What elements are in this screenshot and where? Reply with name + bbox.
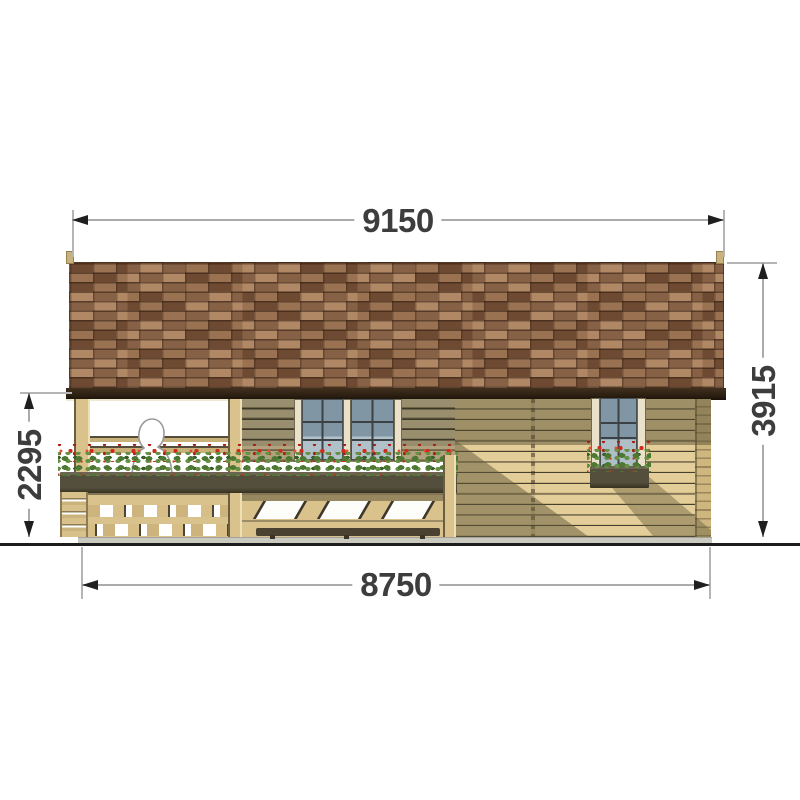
terrace-railing-middle: [240, 493, 443, 537]
ground-line: [0, 543, 800, 546]
eave-shadow: [455, 399, 711, 445]
arrow-left-icon: [82, 580, 98, 590]
railing-slot-row-lower: [62, 524, 240, 536]
railing-opening-3: [381, 501, 435, 519]
extension-line: [81, 547, 83, 599]
arrow-down-icon: [24, 521, 34, 537]
dimension-label-roof-width: 9150: [354, 203, 441, 239]
bench-leg: [344, 535, 349, 539]
arrow-right-icon: [708, 215, 724, 225]
dimension-label-overall-height: 3915: [746, 357, 782, 444]
terrace-railing-left: [62, 493, 240, 537]
arrow-up-icon: [758, 263, 768, 279]
shingle-roof: [69, 262, 724, 389]
railing-slot-row-upper: [62, 505, 240, 517]
porch-post-middle-lower: [228, 493, 242, 537]
elevation-drawing-canvas: 9150 3915 2295 8750: [0, 0, 800, 800]
extension-line: [727, 262, 777, 264]
railing-opening-2: [317, 501, 371, 519]
arrow-down-icon: [758, 521, 768, 537]
cabin-wall: [455, 399, 711, 537]
arrow-right-icon: [694, 580, 710, 590]
terrace-end-post: [443, 455, 456, 537]
bench-leg: [420, 535, 425, 539]
dimension-label-porch-height: 2295: [12, 421, 48, 508]
bench-leg: [270, 535, 275, 539]
railing-board-line: [240, 520, 443, 522]
window-flowers-green: [587, 449, 651, 472]
log-corner-joint-left: [60, 492, 88, 537]
arrow-left-icon: [72, 215, 88, 225]
terrace-flowers-green: [58, 452, 458, 476]
arrow-up-icon: [24, 393, 34, 409]
railing-opening-1: [253, 501, 307, 519]
dimension-label-base-width: 8750: [352, 567, 439, 603]
extension-line: [709, 547, 711, 599]
